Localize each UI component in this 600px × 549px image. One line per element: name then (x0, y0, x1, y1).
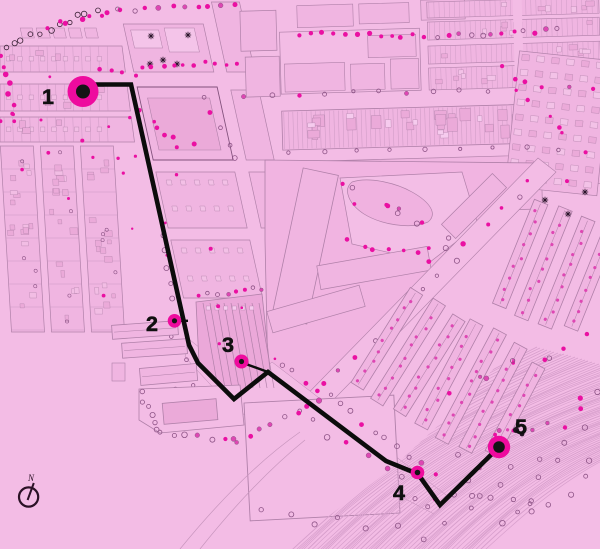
svg-text:4: 4 (393, 481, 405, 505)
svg-text:N: N (27, 473, 35, 483)
svg-text:5: 5 (515, 415, 527, 439)
svg-text:3: 3 (222, 333, 234, 357)
svg-text:1: 1 (42, 85, 54, 109)
svg-text:2: 2 (146, 312, 158, 336)
